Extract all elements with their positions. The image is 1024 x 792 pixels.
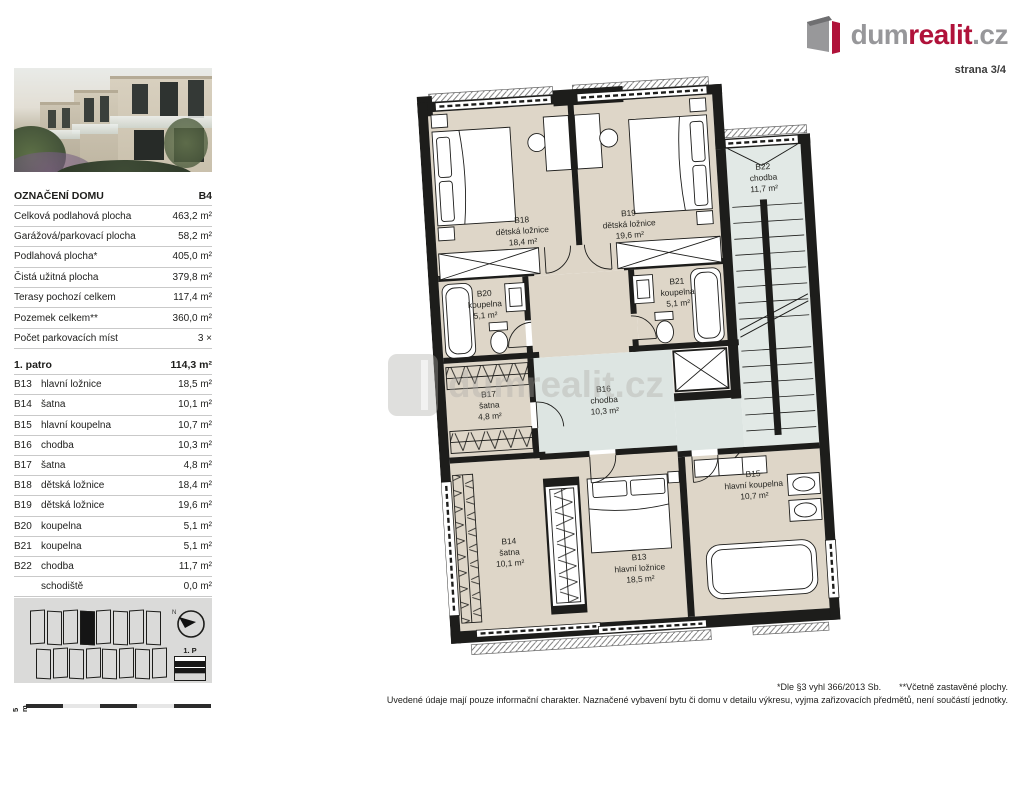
floor-plan: B18 dětská ložnice 18,4 m² B19 dětská lo… xyxy=(416,64,848,666)
svg-text:11,7 m²: 11,7 m² xyxy=(750,182,779,194)
footnote-line: *Dle §3 vyhl 366/2013 Sb.**Včetně zastav… xyxy=(387,681,1008,694)
svg-text:šatna: šatna xyxy=(479,399,500,410)
house-spec-table: OZNAČENÍ DOMU B4 Celková podlahová ploch… xyxy=(14,186,212,349)
svg-text:5,1 m²: 5,1 m² xyxy=(666,297,691,308)
svg-text:šatna: šatna xyxy=(499,546,520,557)
sidebar: OZNAČENÍ DOMU B4 Celková podlahová ploch… xyxy=(14,0,212,792)
house-row-bottom xyxy=(36,648,168,678)
table-header-row: 1. patro 114,3 m² xyxy=(14,355,212,375)
brand-logo: dumrealit.cz xyxy=(805,14,1008,56)
current-house-marker xyxy=(80,611,95,646)
page-number: strana 3/4 xyxy=(955,64,1006,76)
scale-bar: 5 m xyxy=(14,697,211,715)
svg-text:N: N xyxy=(172,610,176,616)
room-label: B19 xyxy=(621,207,637,218)
table-row: B13hlavní ložnice18,5 m² xyxy=(14,375,212,395)
footer-notes: *Dle §3 vyhl 366/2013 Sb.**Včetně zastav… xyxy=(387,681,1008,707)
room-label: B20 xyxy=(476,288,492,299)
svg-text:10,3 m²: 10,3 m² xyxy=(590,405,619,417)
room-label: B18 xyxy=(514,214,530,225)
svg-text:4,8 m²: 4,8 m² xyxy=(478,410,503,421)
scale-label: 5 m xyxy=(11,700,29,712)
svg-text:chodba: chodba xyxy=(749,172,777,184)
dumrealit-building-icon xyxy=(805,14,843,56)
table-row: B19dětská ložnice19,6 m² xyxy=(14,496,212,516)
floor-indicator-icon: 1. P xyxy=(174,646,206,681)
svg-text:10,1 m²: 10,1 m² xyxy=(496,557,525,569)
svg-text:10,7 m²: 10,7 m² xyxy=(740,490,769,502)
table-row: B15hlavní koupelna10,7 m² xyxy=(14,416,212,436)
room-label: B13 xyxy=(631,551,647,562)
floor-room-table: 1. patro 114,3 m² B13hlavní ložnice18,5 … xyxy=(14,355,212,597)
table-row: Terasy pochozí celkem117,4 m² xyxy=(14,288,212,308)
room-label: B21 xyxy=(669,276,685,287)
table-row: B20koupelna5,1 m² xyxy=(14,517,212,537)
watermark-building-icon xyxy=(388,354,438,416)
table-row: schodiště0,0 m² xyxy=(14,577,212,597)
brand-logo-text: dumrealit.cz xyxy=(851,19,1008,51)
table-row: Podlahová plocha*405,0 m² xyxy=(14,247,212,267)
svg-text:18,4 m²: 18,4 m² xyxy=(509,236,538,248)
table-row: B22chodba11,7 m² xyxy=(14,557,212,577)
svg-text:chodba: chodba xyxy=(590,394,618,406)
house-row-top xyxy=(30,610,162,644)
table-row: B16chodba10,3 m² xyxy=(14,436,212,456)
compass-icon: N xyxy=(170,604,210,644)
svg-text:19,6 m²: 19,6 m² xyxy=(615,229,644,241)
table-row: B18dětská ložnice18,4 m² xyxy=(14,476,212,496)
table-row: Počet parkovacích míst3 × xyxy=(14,329,212,349)
site-diagram: N 1. P xyxy=(14,598,212,683)
table-row: B21koupelna5,1 m² xyxy=(14,537,212,557)
table-header-row: OZNAČENÍ DOMU B4 xyxy=(14,186,212,206)
svg-text:5,1 m²: 5,1 m² xyxy=(473,309,498,320)
project-photo xyxy=(14,68,212,172)
table-row: Celková podlahová plocha463,2 m² xyxy=(14,206,212,226)
room-label: B22 xyxy=(755,161,771,172)
room-label: B16 xyxy=(596,383,612,394)
table-row: B17šatna4,8 m² xyxy=(14,456,212,476)
disclaimer: Uvedené údaje mají pouze informační char… xyxy=(387,694,1008,707)
room-label: B15 xyxy=(745,468,761,479)
room-label: B14 xyxy=(501,536,517,547)
table-row: Garážová/parkovací plocha58,2 m² xyxy=(14,227,212,247)
floor-plan-svg: B18 dětská ložnice 18,4 m² B19 dětská lo… xyxy=(416,64,848,666)
svg-text:18,5 m²: 18,5 m² xyxy=(626,573,655,585)
table-row: B14šatna10,1 m² xyxy=(14,395,212,415)
table-row: Pozemek celkem**360,0 m² xyxy=(14,308,212,328)
room-label: B17 xyxy=(481,389,497,400)
table-row: Čistá užitná plocha379,8 m² xyxy=(14,268,212,288)
